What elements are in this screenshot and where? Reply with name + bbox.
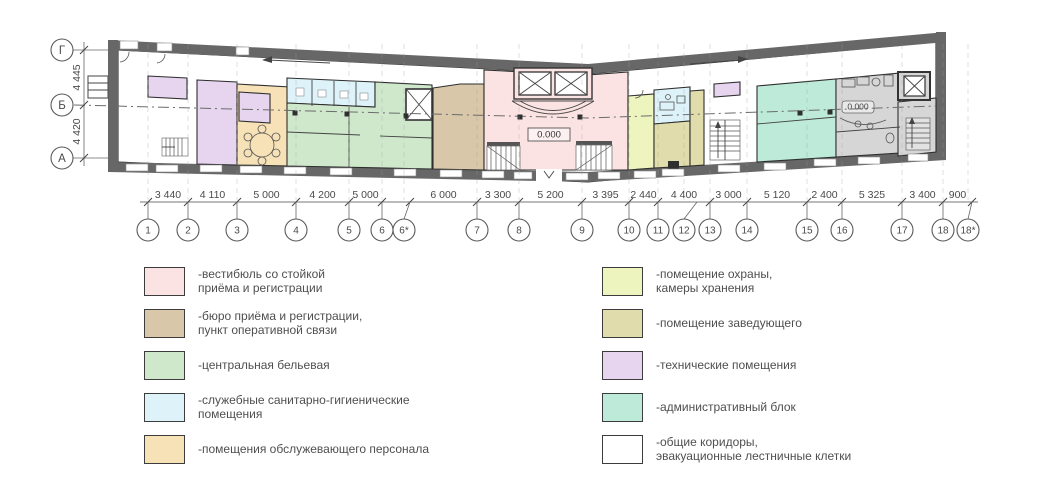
legend-column-left: -вестибюль со стойкой приёма и регистрац… — [144, 266, 429, 476]
legend-item: -помещение охраны, камеры хранения — [602, 266, 851, 296]
grid-axis-label: 18 — [937, 226, 949, 237]
legend-swatch — [602, 351, 643, 380]
grid-axis-label: 10 — [623, 226, 635, 237]
legend-item: -административный блок — [602, 392, 851, 422]
legend-swatch — [144, 309, 185, 338]
legend-item: -помещения обслужевающего персонала — [144, 434, 429, 464]
dim-label: 5 325 — [859, 189, 885, 201]
top-opening — [120, 41, 138, 49]
room-technical-3 — [239, 92, 270, 123]
room-bureau — [433, 84, 484, 170]
level-mark-2: 0.000 — [847, 102, 869, 112]
legend-swatch — [602, 393, 643, 422]
row-axis-label: Г — [59, 45, 66, 57]
legend-item: -бюро приёма и регистрации, пункт операт… — [144, 308, 429, 338]
grid-axis-label: 6* — [399, 226, 409, 237]
room-sanitary-2 — [654, 87, 690, 124]
elevator-icon-vestibule — [514, 68, 592, 99]
legend-label: -вестибюль со стойкой приёма и регистрац… — [198, 267, 325, 295]
elevator-icon-laundry — [406, 89, 432, 120]
grid-axis-label: 8 — [516, 226, 522, 237]
stairs-right-icon — [906, 117, 930, 150]
grid-axis-label: 2 — [185, 226, 191, 237]
level-mark: 0.000 — [537, 130, 561, 141]
grid-axis-label: 12 — [678, 226, 690, 237]
legend-item: -служебные санитарно-гигиенические помещ… — [144, 392, 429, 422]
dim-label: 3 440 — [155, 189, 181, 201]
dim-label: 900 — [949, 189, 967, 201]
dim-label: 3 400 — [909, 189, 935, 201]
legend-item: -технические помещения — [602, 350, 851, 380]
legend-label: -служебные санитарно-гигиенические помещ… — [198, 393, 410, 421]
legend-label: -технические помещения — [656, 358, 796, 372]
room-security — [628, 94, 654, 170]
bubble-leader — [684, 202, 697, 219]
grid-axis-label: 5 — [346, 226, 352, 237]
dim-label: 3 300 — [485, 189, 511, 201]
grid-axis-label: 6 — [379, 226, 385, 237]
grid-axis-label: 7 — [474, 226, 480, 237]
legend-label: -помещение охраны, камеры хранения — [656, 267, 772, 295]
room-gray-cafe — [836, 73, 900, 157]
dim-label: 5 000 — [352, 189, 378, 201]
dim-label: 4 200 — [309, 189, 335, 201]
grid-axis-label: 4 — [293, 226, 299, 237]
legend-item: -общие коридоры, эвакуационные лестничны… — [602, 434, 851, 464]
grid-axis-label: 17 — [896, 226, 908, 237]
legend-swatch — [144, 351, 185, 380]
legend-label: -административный блок — [656, 400, 796, 414]
grid-axis-label: 11 — [653, 226, 664, 237]
dim-label: 2 400 — [811, 189, 837, 201]
room-technical-1 — [148, 76, 187, 99]
room-manager-2 — [690, 90, 704, 166]
right-wall — [936, 32, 946, 160]
dim-label: 5 120 — [764, 189, 790, 201]
top-opening — [157, 43, 172, 51]
grid-axis-label: 3 — [234, 226, 240, 237]
row-dim-label: 4 445 — [71, 64, 83, 90]
grid-axis-label: 9 — [579, 226, 585, 237]
dimension-chain: 3 4404 1105 0004 2005 0006 0003 3005 200… — [140, 189, 978, 219]
dim-label: 3 000 — [715, 189, 741, 201]
stairs-vestibule-right-icon — [576, 141, 612, 170]
legend-label: -помещения обслужевающего персонала — [198, 442, 429, 456]
legend-column-right: -помещение охраны, камеры хранения-помещ… — [602, 266, 851, 476]
room-manager — [654, 121, 690, 168]
room-technical-4 — [714, 82, 740, 97]
grid-axis-label: 13 — [704, 226, 716, 237]
floor-plan-drawing: 0.000 — [0, 0, 1048, 258]
legend-swatch — [144, 393, 185, 422]
dim-label: 4 400 — [671, 189, 697, 201]
column — [668, 161, 679, 169]
top-opening — [236, 47, 249, 55]
stairs-vestibule-left-icon — [487, 142, 520, 170]
row-axis-label: Б — [58, 100, 66, 112]
legend-label: -общие коридоры, эвакуационные лестничны… — [656, 435, 851, 463]
dim-label: 3 395 — [592, 189, 618, 201]
legend-swatch — [602, 267, 643, 296]
legend-item: -помещение заведующего — [602, 308, 851, 338]
grid-axis-label: 1 — [145, 226, 151, 237]
legend-item: -вестибюль со стойкой приёма и регистрац… — [144, 266, 429, 296]
grid-axis-label: 16 — [836, 226, 848, 237]
grid-axis-label: 18* — [960, 226, 975, 237]
legend-swatch — [144, 435, 185, 464]
elevator-icon-right — [898, 72, 930, 100]
legend-swatch — [602, 309, 643, 338]
left-porch — [88, 76, 108, 98]
legend-label: -помещение заведующего — [656, 316, 802, 330]
dim-label: 5 000 — [253, 189, 279, 201]
stairs-left-icon — [162, 138, 188, 156]
entrance-icon — [536, 169, 562, 184]
legend-label: -центральная бельевая — [198, 358, 330, 372]
grid-axis-label: 14 — [741, 226, 753, 237]
dim-label: 4 110 — [200, 189, 226, 201]
row-axes: Г Б А 4 445 4 420 — [51, 39, 108, 169]
stairs-center-icon — [710, 120, 740, 160]
legend-item: -центральная бельевая — [144, 350, 429, 380]
floor-plan-sheet: 0.000 — [0, 0, 1048, 481]
row-axis-label: А — [58, 153, 66, 165]
dim-label: 6 000 — [430, 189, 456, 201]
legend-label: -бюро приёма и регистрации, пункт операт… — [198, 309, 362, 337]
dim-label: 2 440 — [630, 189, 656, 201]
row-dim-label: 4 420 — [71, 118, 83, 144]
legend-swatch — [144, 267, 185, 296]
grid-bubbles: 1234566*78910111213141516171818* — [137, 219, 979, 241]
dim-label: 5 200 — [537, 189, 563, 201]
legend-swatch — [602, 435, 643, 464]
room-technical-2 — [197, 80, 237, 165]
grid-axis-label: 15 — [801, 226, 813, 237]
